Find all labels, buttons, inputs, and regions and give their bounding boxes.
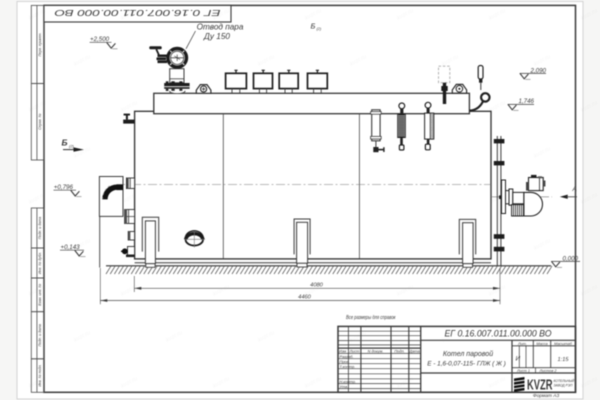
svg-text:Все размеры для справок: Все размеры для справок (346, 315, 396, 321)
svg-text:Справ. №: Справ. № (38, 113, 42, 129)
svg-text:Подп. и дата: Подп. и дата (38, 217, 42, 240)
svg-text:KVZR: KVZR (527, 378, 553, 394)
svg-text:Лист 1: Лист 1 (516, 369, 530, 373)
svg-text:Утв.: Утв. (340, 384, 349, 389)
svg-text:Отвод пара: Отвод пара (197, 23, 244, 32)
svg-text:Лист: Лист (349, 348, 361, 353)
svg-text:Т.контр.: Т.контр. (340, 364, 356, 369)
svg-text:Масштаб: Масштаб (554, 342, 573, 346)
svg-text:Б: Б (62, 138, 68, 148)
svg-text:И: И (516, 356, 521, 363)
svg-text:Формат А3: Формат А3 (533, 393, 560, 399)
svg-text:Перв. примен.: Перв. примен. (38, 33, 42, 57)
svg-text:ЗАВОД РЭП: ЗАВОД РЭП (554, 384, 574, 388)
svg-text:(2): (2) (317, 27, 322, 31)
svg-text:Дата: Дата (408, 348, 420, 353)
svg-text:Инв. № дубл.: Инв. № дубл. (38, 252, 42, 274)
svg-text:N докум.: N докум. (368, 348, 384, 353)
svg-text:А: А (571, 186, 576, 193)
svg-text:Пров.: Пров. (340, 359, 350, 364)
svg-text:Лит.: Лит. (517, 342, 527, 346)
svg-text:КОТЕЛЬНЫЙ: КОТЕЛЬНЫЙ (554, 379, 575, 383)
svg-text:Изм: Изм (339, 348, 347, 353)
svg-text:4460: 4460 (298, 295, 311, 301)
svg-text:Е - 1,6-0,07-115- ГЛЖ ( Ж ): Е - 1,6-0,07-115- ГЛЖ ( Ж ) (427, 360, 506, 367)
svg-text:Листов 2: Листов 2 (539, 369, 558, 373)
svg-text:Котел паровой: Котел паровой (443, 350, 493, 358)
svg-text:4080: 4080 (310, 282, 323, 288)
svg-text:Подп.: Подп. (394, 348, 404, 353)
svg-text:Масса: Масса (536, 342, 547, 346)
svg-text:Подп. и дата: Подп. и дата (38, 324, 42, 347)
svg-text:Ду 150: Ду 150 (203, 32, 230, 41)
svg-text:Б: Б (311, 22, 316, 31)
svg-text:ЕГ 0.16.007.011.00.000 ВО: ЕГ 0.16.007.011.00.000 ВО (445, 327, 553, 338)
svg-text:1:15: 1:15 (558, 357, 570, 363)
